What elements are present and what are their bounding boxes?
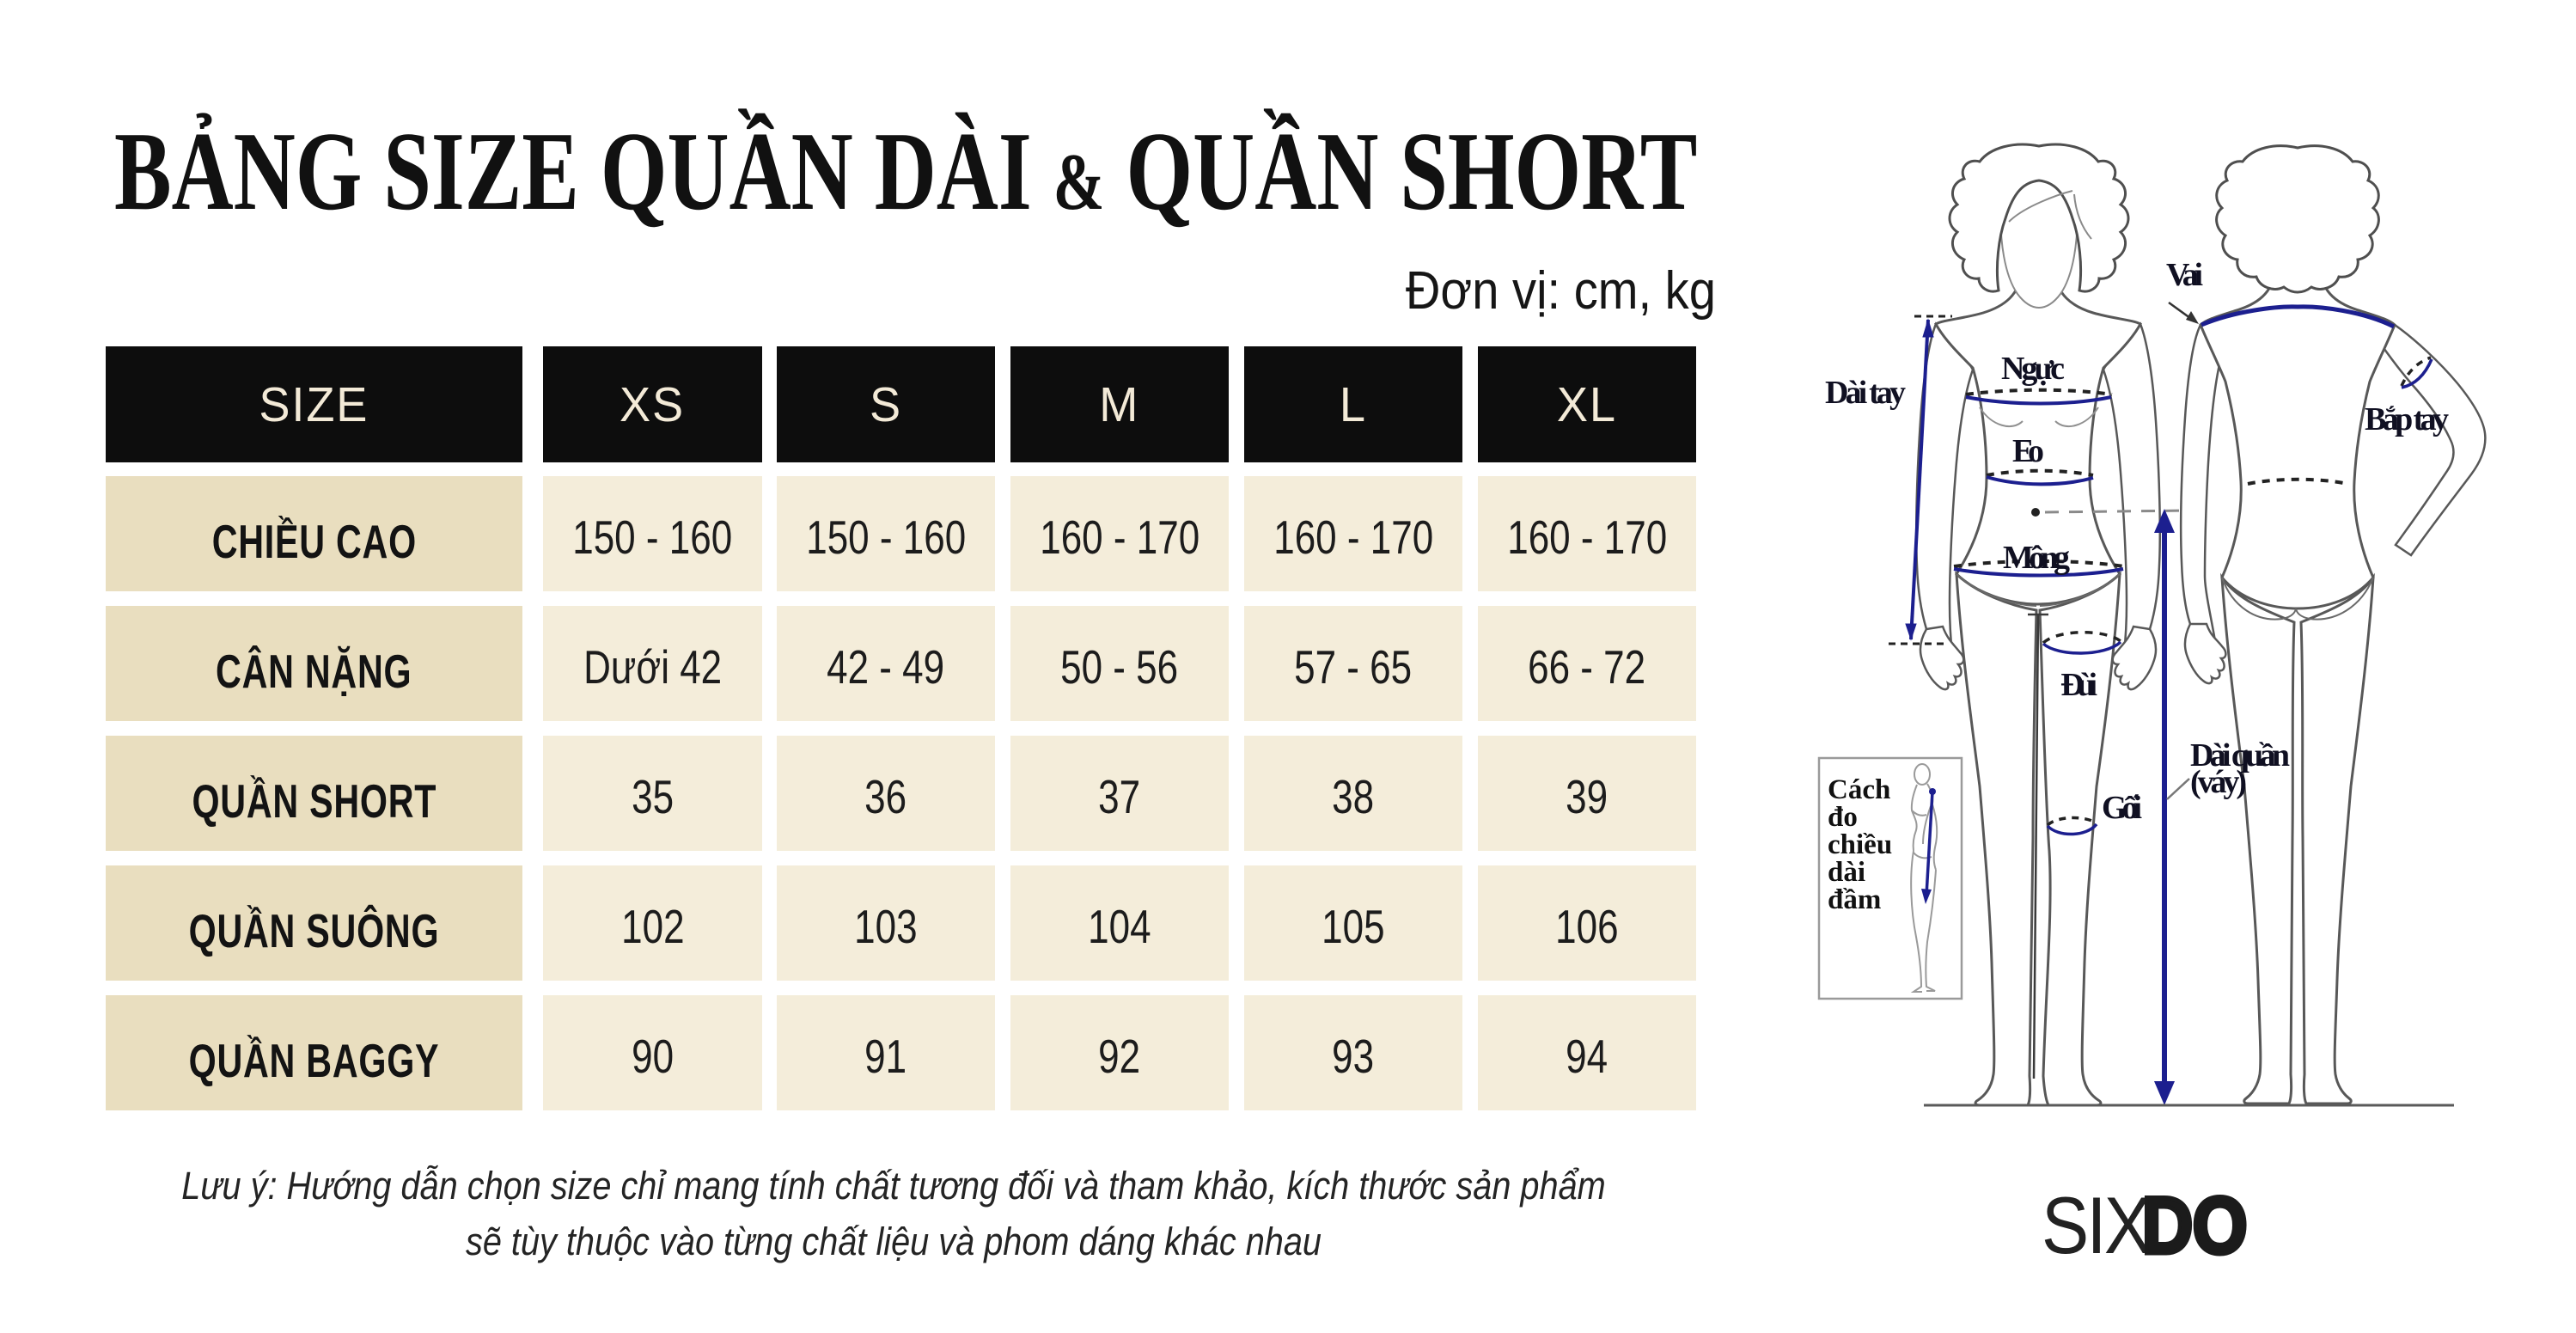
svg-text:Mông: Mông xyxy=(2003,540,2070,576)
svg-text:Cách: Cách xyxy=(1828,774,1890,805)
svg-text:dài: dài xyxy=(1828,857,1865,888)
svg-text:đầm: đầm xyxy=(1828,884,1881,915)
svg-text:Ngực: Ngực xyxy=(2001,351,2065,387)
svg-text:chiều: chiều xyxy=(1828,829,1892,860)
svg-text:Eo: Eo xyxy=(2012,433,2044,469)
svg-text:Dài tay: Dài tay xyxy=(1825,375,1906,411)
svg-text:đo: đo xyxy=(1828,802,1858,833)
svg-text:Đùi: Đùi xyxy=(2060,667,2097,703)
svg-text:Bắp tay: Bắp tay xyxy=(2365,401,2449,437)
svg-text:Vai: Vai xyxy=(2166,257,2203,293)
svg-text:(váy): (váy) xyxy=(2190,764,2247,800)
svg-text:Gối: Gối xyxy=(2102,790,2142,826)
